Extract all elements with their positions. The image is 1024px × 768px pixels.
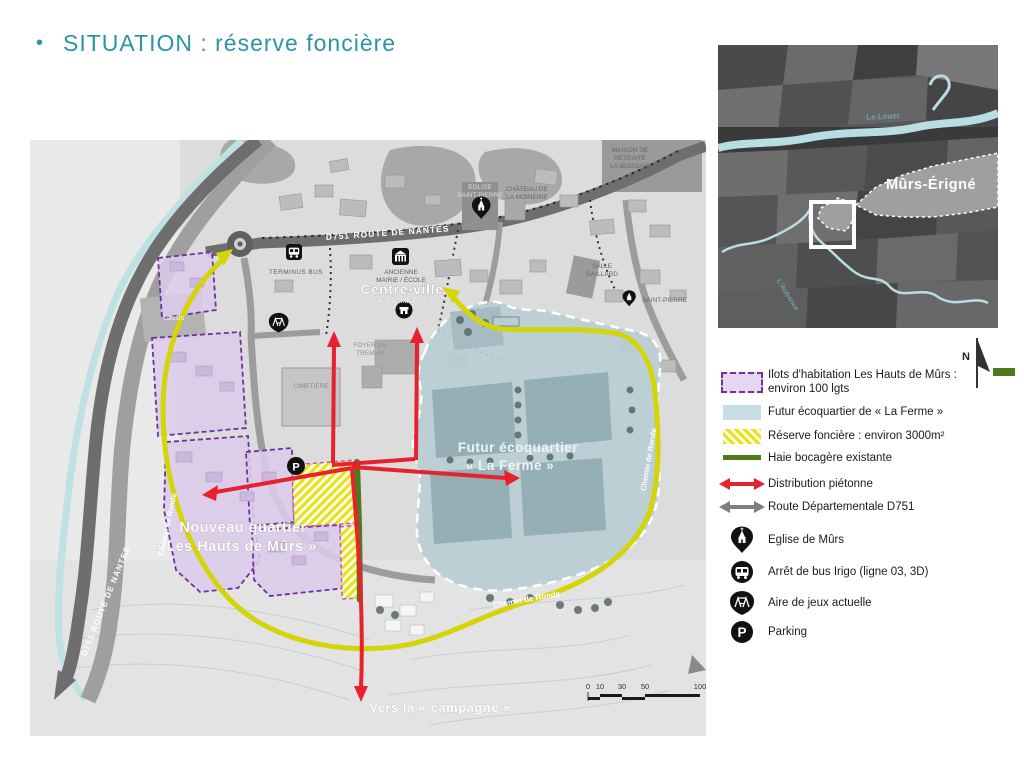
legend-item-reserve: Réserve foncière : environ 3000m² — [716, 429, 1016, 444]
label-salle-1: SALLE — [592, 263, 613, 270]
scale-100: 100 — [694, 682, 706, 691]
legend-label: Parking — [768, 625, 807, 639]
label-maison-retraite-1: MAISON DE — [612, 147, 649, 154]
legend-label: Réserve foncière : environ 3000m² — [768, 429, 944, 443]
north-label: N — [962, 351, 970, 363]
label-saint-pierre: SAINT-PIERRE — [642, 297, 688, 304]
legend-item-distribution: Distribution piétonne — [716, 477, 1016, 491]
legend-label: Distribution piétonne — [768, 477, 873, 491]
parking-glyph: P — [292, 462, 299, 474]
label-le-louet: Le Louet — [866, 111, 900, 122]
label-nouveau-quartier-2: « Les Hauts de Mûrs » — [153, 539, 317, 555]
label-terminus-bus: TERMINUS BUS — [269, 269, 323, 276]
label-centre-ville: Centre-ville — [360, 282, 443, 297]
legend-label: Arrêt de bus Irigo (ligne 03, 3D) — [768, 565, 928, 579]
label-eglise-1: EGLISE — [468, 184, 492, 191]
scale-10: 10 — [596, 682, 604, 691]
bus-icon — [286, 244, 302, 260]
label-maison-retraite-2: RETRAITE — [614, 155, 647, 162]
legend-item-haie: Haie bocagère existante — [716, 451, 1016, 465]
slide: • SITUATION : réserve foncière — [0, 0, 1024, 768]
townhall-icon — [392, 248, 409, 265]
label-ecoquartier-2: « La Ferme » — [466, 458, 555, 473]
label-foyer-1: FOYER DE — [353, 342, 387, 349]
legend-item-bus: Arrêt de bus Irigo (ligne 03, 3D) — [716, 560, 1016, 584]
label-chateau-1: CHÂTEAU DE — [506, 184, 549, 193]
yellow-hatch-swatch — [723, 429, 761, 444]
scale-30: 30 — [618, 682, 626, 691]
legend-item-eglise: Eglise de Mûrs — [716, 526, 1016, 554]
blue-swatch — [723, 405, 761, 420]
label-nouveau-quartier-1: Nouveau quartier — [179, 520, 306, 536]
church-icon — [730, 526, 754, 554]
parking-glyph: P — [737, 625, 746, 640]
label-chateau-2: LA MOINERIE — [506, 194, 548, 201]
legend-label: Route Départementale D751 — [768, 500, 914, 514]
green-line-swatch — [723, 455, 761, 460]
playground-icon — [729, 590, 755, 616]
label-ecoquartier-1: Futur écoquartier — [458, 440, 579, 455]
page-title: • SITUATION : réserve foncière — [36, 30, 396, 57]
title-bullet: • — [36, 32, 43, 55]
label-maison-retraite-3: LA BUISSAIE — [610, 163, 650, 170]
legend-item-parking: P Parking — [716, 620, 1016, 644]
label-commerce: LE COMMERCE — [375, 298, 429, 305]
legend-label: Aire de jeux actuelle — [768, 596, 872, 610]
legend: Ilots d'habitation Les Hauts de Mûrs : e… — [716, 368, 1016, 644]
legend-item-ilots: Ilots d'habitation Les Hauts de Mûrs : e… — [716, 368, 1016, 397]
legend-label: Haie bocagère existante — [768, 451, 892, 465]
label-mairie-1: ANCIENNE — [384, 269, 418, 276]
scale-50: 50 — [641, 682, 649, 691]
parking-icon: P — [287, 457, 305, 475]
legend-item-d751: Route Départementale D751 — [716, 500, 1016, 514]
roundabout — [227, 231, 253, 257]
legend-item-jeux: Aire de jeux actuelle — [716, 590, 1016, 616]
bus-icon — [730, 560, 754, 584]
gray-double-arrow-icon — [719, 500, 765, 514]
label-salle-2: GAILLARD — [586, 271, 618, 278]
red-double-arrow-icon — [719, 477, 765, 491]
cemetery-block — [282, 368, 340, 426]
legend-label: environ 100 lgts — [768, 382, 957, 396]
label-eglise-2: SAINT-PIERRE — [457, 192, 503, 199]
legend-item-ecoquartier: Futur écoquartier de « La Ferme » — [716, 405, 1016, 420]
legend-label: Eglise de Mûrs — [768, 533, 844, 547]
legend-label: Futur écoquartier de « La Ferme » — [768, 405, 943, 419]
label-murs-erigne: Mûrs-Érigné — [886, 176, 976, 193]
purple-dashed-swatch — [721, 372, 763, 393]
label-cimetiere: CIMETIÈRE — [293, 381, 329, 390]
title-text: SITUATION : réserve foncière — [63, 30, 396, 57]
site-plan-map: P D751 ROUTE DE NANTES D751 ROUTE DE NAN… — [30, 140, 706, 736]
label-bassin: bassin — [164, 315, 184, 322]
label-campagne: Vers la « campagne » — [369, 700, 511, 715]
legend-label: Ilots d'habitation Les Hauts de Mûrs : — [768, 368, 957, 382]
farm-building-box — [493, 317, 519, 326]
satellite-inset-map: Le Louet Mûrs-Érigné L'Aubance — [718, 45, 998, 328]
parking-icon: P — [730, 620, 754, 644]
label-foyer-2: TREMUR — [356, 350, 384, 357]
scale-0: 0 — [586, 682, 590, 691]
